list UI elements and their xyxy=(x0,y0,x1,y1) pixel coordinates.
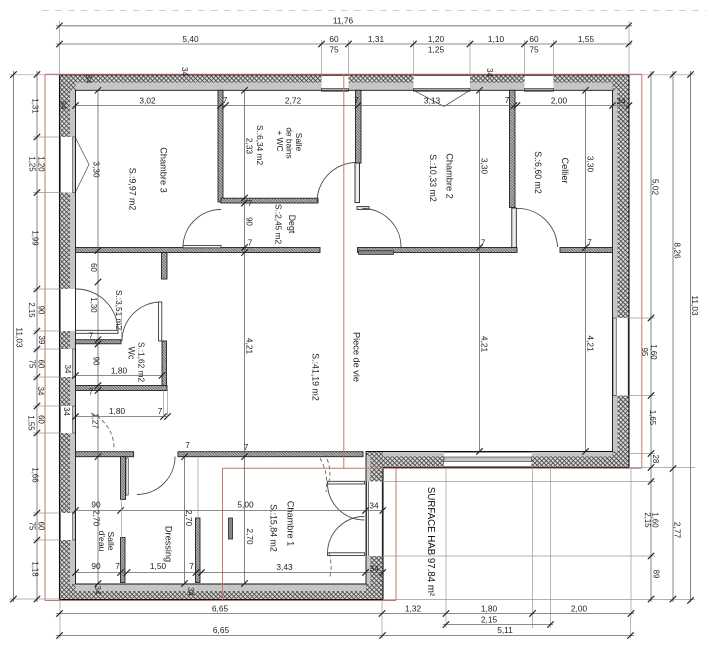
svg-text:7: 7 xyxy=(189,561,194,571)
svg-text:34: 34 xyxy=(369,501,379,511)
svg-text:Chambre 2: Chambre 2 xyxy=(445,153,455,198)
svg-text:S.:6,34 m2: S.:6,34 m2 xyxy=(255,125,265,166)
svg-text:2,00: 2,00 xyxy=(571,604,588,614)
svg-text:2,70: 2,70 xyxy=(91,510,101,527)
svg-text:34: 34 xyxy=(485,68,494,77)
svg-text:7: 7 xyxy=(248,239,252,248)
svg-text:34: 34 xyxy=(63,365,72,374)
svg-text:34: 34 xyxy=(58,101,67,110)
svg-text:34: 34 xyxy=(369,564,379,574)
svg-text:Wc: Wc xyxy=(127,347,137,360)
svg-text:5,02: 5,02 xyxy=(650,179,660,196)
svg-text:7: 7 xyxy=(89,388,93,397)
svg-text:75: 75 xyxy=(329,45,339,55)
svg-text:Chambre 1: Chambre 1 xyxy=(286,501,296,546)
svg-text:2,33: 2,33 xyxy=(244,138,254,155)
svg-text:60: 60 xyxy=(36,360,45,369)
svg-text:34: 34 xyxy=(186,587,195,596)
svg-text:60: 60 xyxy=(89,263,98,272)
svg-text:1,20: 1,20 xyxy=(36,156,45,172)
svg-text:2,15: 2,15 xyxy=(643,512,652,528)
svg-text:1,65: 1,65 xyxy=(648,410,657,426)
svg-text:90: 90 xyxy=(244,217,253,226)
svg-text:Piece de vie: Piece de vie xyxy=(352,332,362,382)
svg-text:1,80: 1,80 xyxy=(109,406,126,416)
svg-text:1,50: 1,50 xyxy=(150,561,167,571)
svg-text:2,15: 2,15 xyxy=(27,302,36,318)
svg-text:S.:10,33 m2: S.:10,33 m2 xyxy=(428,154,438,202)
svg-text:90: 90 xyxy=(91,357,100,366)
svg-text:3,30: 3,30 xyxy=(479,158,489,175)
svg-text:34: 34 xyxy=(616,96,626,106)
svg-text:7: 7 xyxy=(248,199,252,208)
svg-text:S.:15,84 m2: S.:15,84 m2 xyxy=(269,504,279,552)
svg-text:75: 75 xyxy=(27,360,36,369)
svg-text:Degt: Degt xyxy=(287,215,297,234)
svg-text:2,72: 2,72 xyxy=(285,96,302,106)
svg-text:95: 95 xyxy=(640,348,649,357)
svg-text:90: 90 xyxy=(36,306,45,315)
svg-text:de bains: de bains xyxy=(284,127,294,158)
svg-text:1,30: 1,30 xyxy=(89,297,98,313)
svg-text:d'eau: d'eau xyxy=(97,531,107,552)
svg-text:7: 7 xyxy=(587,238,591,247)
svg-text:3,30: 3,30 xyxy=(585,156,595,173)
svg-text:7: 7 xyxy=(505,95,510,105)
svg-text:4,21: 4,21 xyxy=(585,335,595,352)
svg-text:1,32: 1,32 xyxy=(405,604,422,614)
svg-text:1,99: 1,99 xyxy=(30,230,39,245)
svg-text:6,65: 6,65 xyxy=(213,625,230,635)
svg-text:5,40: 5,40 xyxy=(182,34,199,44)
svg-text:7: 7 xyxy=(481,239,485,248)
svg-text:34: 34 xyxy=(36,387,45,396)
svg-text:5,11: 5,11 xyxy=(497,625,513,635)
svg-text:8,26: 8,26 xyxy=(672,242,682,259)
svg-text:S.:9,97 m2: S.:9,97 m2 xyxy=(128,168,138,211)
svg-text:60: 60 xyxy=(36,415,45,424)
svg-text:1,10: 1,10 xyxy=(488,34,505,44)
svg-text:S.:6,60 m2: S.:6,60 m2 xyxy=(533,151,543,194)
svg-text:60: 60 xyxy=(329,34,339,44)
svg-text:90: 90 xyxy=(91,500,101,510)
svg-text:1,27: 1,27 xyxy=(90,413,99,428)
svg-text:39: 39 xyxy=(37,336,46,345)
svg-text:2,77: 2,77 xyxy=(672,522,682,539)
svg-text:3,02: 3,02 xyxy=(139,96,156,106)
svg-text:3,30: 3,30 xyxy=(91,161,101,178)
svg-text:Cellier: Cellier xyxy=(560,157,570,183)
svg-text:11,76: 11,76 xyxy=(333,16,354,26)
svg-text:1,20: 1,20 xyxy=(428,34,445,44)
svg-text:S.:1,62 m2: S.:1,62 m2 xyxy=(136,342,146,383)
svg-text:7: 7 xyxy=(185,440,190,450)
svg-text:89: 89 xyxy=(651,570,660,579)
svg-text:28: 28 xyxy=(651,455,660,464)
svg-text:2,70: 2,70 xyxy=(184,510,194,527)
svg-text:7: 7 xyxy=(89,332,93,341)
svg-text:7: 7 xyxy=(158,406,163,416)
svg-text:S.:3,51 m2: S.:3,51 m2 xyxy=(114,290,124,331)
svg-text:1,25: 1,25 xyxy=(27,156,36,172)
svg-text:60: 60 xyxy=(36,522,45,531)
svg-text:34: 34 xyxy=(93,586,102,595)
svg-text:7: 7 xyxy=(115,561,120,571)
svg-text:60: 60 xyxy=(529,34,539,44)
svg-text:3,13: 3,13 xyxy=(424,96,441,106)
svg-text:11,03: 11,03 xyxy=(690,295,700,316)
svg-text:+ WC: + WC xyxy=(275,131,285,152)
svg-text:Chambre 3: Chambre 3 xyxy=(159,147,169,192)
svg-text:7: 7 xyxy=(244,442,249,452)
svg-text:1,80: 1,80 xyxy=(481,604,498,614)
svg-text:1,31: 1,31 xyxy=(30,98,39,113)
svg-text:4,21: 4,21 xyxy=(244,338,254,355)
svg-text:34: 34 xyxy=(84,75,93,84)
svg-text:90: 90 xyxy=(91,561,101,571)
svg-text:7: 7 xyxy=(223,95,228,105)
svg-text:1,31: 1,31 xyxy=(368,34,385,44)
svg-text:7: 7 xyxy=(354,95,359,105)
svg-text:1,55: 1,55 xyxy=(578,34,595,44)
svg-text:1,60: 1,60 xyxy=(649,344,658,360)
svg-text:3,43: 3,43 xyxy=(276,562,293,572)
svg-text:2,00: 2,00 xyxy=(551,96,568,106)
svg-text:11,03: 11,03 xyxy=(14,327,24,348)
svg-text:Salle: Salle xyxy=(294,133,304,152)
svg-text:1,66: 1,66 xyxy=(30,467,39,482)
svg-text:4,21: 4,21 xyxy=(479,336,489,353)
svg-text:2,15: 2,15 xyxy=(481,615,498,625)
svg-text:5,00: 5,00 xyxy=(237,500,254,510)
svg-text:1,18: 1,18 xyxy=(30,561,39,576)
svg-text:S.:2,45 m2: S.:2,45 m2 xyxy=(273,204,283,245)
svg-text:2,70: 2,70 xyxy=(245,528,255,545)
svg-text:75: 75 xyxy=(27,522,36,531)
svg-text:34: 34 xyxy=(62,407,71,416)
svg-text:34: 34 xyxy=(180,67,189,76)
svg-text:SURFACE HAB 97.84 m²: SURFACE HAB 97.84 m² xyxy=(425,487,436,597)
svg-text:75: 75 xyxy=(529,45,539,55)
svg-text:1,25: 1,25 xyxy=(428,45,445,55)
svg-text:6,65: 6,65 xyxy=(212,604,229,614)
svg-text:Dressing: Dressing xyxy=(164,526,174,562)
svg-text:S.:41,19 m2: S.:41,19 m2 xyxy=(311,353,321,401)
svg-text:1,55: 1,55 xyxy=(26,415,35,431)
svg-text:1,80: 1,80 xyxy=(111,366,128,376)
